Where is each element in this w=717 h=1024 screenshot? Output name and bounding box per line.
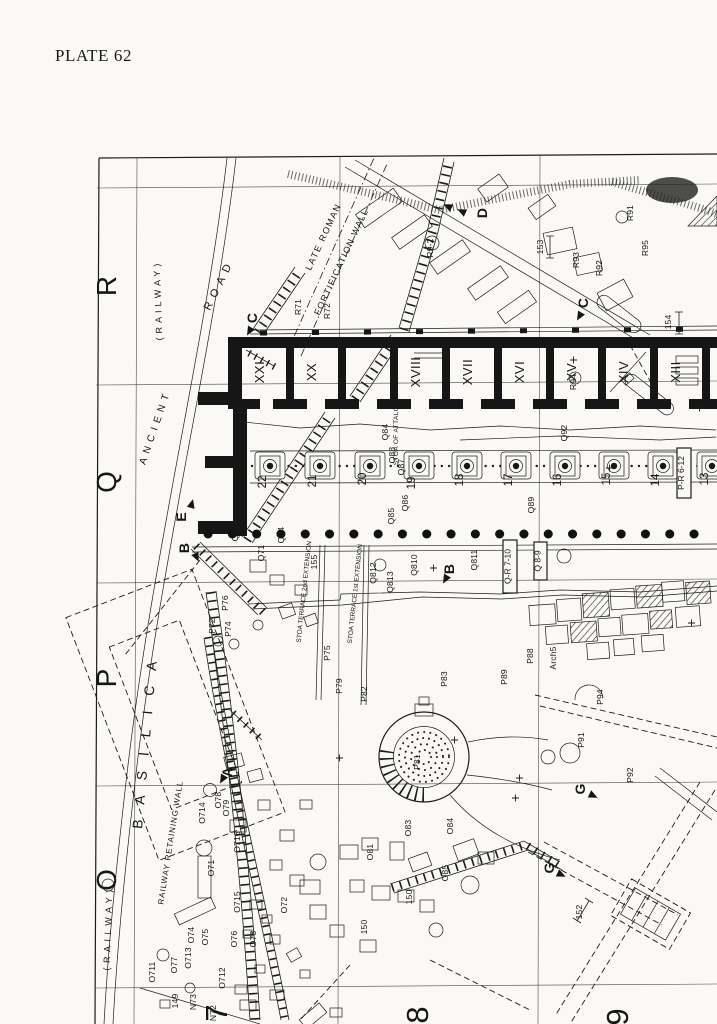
label-152: 152 [574, 905, 584, 920]
label-p91: P91 [576, 732, 586, 748]
label-p75: P75 [322, 645, 332, 661]
site-plan-svg: Q-R 7-10 Q 8-9 P-R 6-12 R Q P O 7 8 9 (R… [0, 0, 717, 1024]
room-label-xvii: XVII [460, 359, 475, 386]
boxed-label-q89: Q 8-9 [533, 550, 543, 572]
section-marker-e: E [173, 512, 189, 521]
railway-bottom-label: (RAILWAY) [102, 885, 115, 971]
room-label-xiv: XIV [616, 361, 631, 383]
label-o73: O73 [248, 931, 258, 948]
label-o85: O85 [440, 865, 450, 882]
label-o71: O71 [206, 860, 216, 877]
label-r9-2: R9-2 [425, 238, 435, 257]
grid-letter-q: Q [91, 471, 122, 493]
label-o711: O711 [147, 961, 157, 982]
roads-and-aqueducts [528, 685, 717, 1024]
label-o715: O715 [232, 891, 242, 913]
label-q87: Q87 [396, 459, 406, 476]
column-label-18: 18 [454, 474, 466, 487]
label-q85: Q85 [386, 508, 396, 525]
column-label-14: 14 [650, 473, 662, 486]
label-p74: P74 [223, 621, 233, 637]
label-q812: Q812 [368, 562, 378, 584]
label-q810: Q810 [409, 554, 419, 576]
section-marker-c-top: C [244, 313, 260, 323]
label-p76: P76 [220, 595, 230, 611]
column-label-21: 21 [307, 475, 319, 488]
label-149: 149 [170, 994, 180, 1009]
column-label-17: 17 [503, 474, 515, 487]
label-o84: O84 [445, 818, 455, 835]
room-label-xviii: XVIII [408, 357, 423, 388]
section-marker-b-left: B [176, 543, 192, 553]
label-q72: Q72 [230, 525, 240, 542]
grid-number-9: 9 [600, 1008, 635, 1024]
label-p89: P89 [499, 669, 509, 685]
grid-number-8: 8 [400, 1006, 435, 1023]
south-ruins [300, 838, 562, 1020]
label-p72: P72 [207, 618, 217, 634]
label-o713: O713 [183, 947, 193, 969]
label-153: 153 [535, 240, 545, 255]
label-150-b: 150 [359, 920, 369, 935]
label-q71: Q71 [256, 545, 266, 562]
room-label-xvi: XVI [512, 361, 527, 383]
railway-top-label: (RAILWAY) [152, 260, 165, 341]
label-o72: O72 [279, 897, 289, 914]
grid-letter-r: R [91, 276, 122, 296]
label-r95: R95 [640, 240, 650, 256]
label-p88: P88 [525, 648, 535, 664]
column-label-22: 22 [257, 476, 269, 489]
label-o714: O714 [197, 802, 207, 824]
label-o79: O79 [221, 800, 231, 817]
label-o77: O77 [169, 957, 179, 974]
label-r71: R71 [293, 299, 303, 315]
label-r92: R92 [594, 260, 604, 276]
label-o76: O76 [229, 931, 239, 948]
label-o83: O83 [403, 820, 413, 837]
retaining-wall-label: RAILWAY RETAINING WALL [156, 780, 184, 905]
boxed-label-qr710: Q-R 7-10 [503, 549, 513, 584]
label-p79: P79 [334, 678, 344, 694]
label-n73: N73 [188, 994, 198, 1010]
boxed-label-pr612: P-R 6-12 [676, 456, 686, 490]
label-o716: O716 [232, 831, 242, 853]
label-q74: Q74 [276, 527, 286, 544]
ancient-road-label-ancient: ANCIENT [138, 388, 174, 466]
label-r93: R93 [571, 252, 581, 268]
section-marker-g-upper: G [572, 783, 588, 794]
label-p94: P94 [595, 689, 605, 705]
label-150-a: 150 [404, 890, 414, 905]
label-n72: N72 [208, 1005, 218, 1021]
label-o74: O74 [186, 927, 196, 944]
section-marker-c-right: C [575, 298, 591, 308]
room-label-xiii: XIII [668, 361, 683, 383]
basilica-label: BASILICA [129, 646, 161, 830]
stoa-note-label-2: ORIGINAL N END [0, 0, 29, 2]
column-label-20: 20 [357, 473, 369, 486]
grid-letter-p: P [91, 669, 122, 688]
section-marker-g-lower: G [541, 862, 557, 873]
label-r72: R72 [322, 303, 332, 319]
column-label-16: 16 [552, 474, 564, 487]
label-o712: O712 [217, 967, 227, 989]
label-o75: O75 [200, 929, 210, 946]
label-r94: R94 [568, 374, 578, 390]
label-p82: P82 [359, 686, 369, 702]
label-p83: P83 [439, 671, 449, 687]
room-label-xxi: XXI [252, 361, 267, 383]
section-marker-d: D [474, 208, 490, 218]
section-marker-b-mid: B [441, 564, 457, 574]
label-p81: P81 [412, 754, 422, 770]
stoa-north-end-wall [198, 392, 247, 536]
ancient-road-label-road: ROAD [202, 257, 237, 312]
label-p92: P92 [625, 767, 635, 783]
label-q84: Q84 [380, 424, 390, 441]
label-154: 154 [663, 315, 673, 330]
area-labels: (RAILWAY) (RAILWAY) ANCIENT ROAD LATE RO… [0, 0, 400, 971]
late-roman-wall-label-2: FORTIFICATION WALL [312, 207, 370, 317]
label-r91: R91 [625, 205, 635, 221]
column-label-15: 15 [601, 473, 613, 486]
label-o81: O81 [365, 844, 375, 861]
label-155: 155 [309, 555, 319, 570]
label-q86: Q86 [400, 495, 410, 512]
column-label-19: 19 [406, 477, 418, 490]
stoa-room-labels: XXI XX XVIII XVII XVI XV XIV XIII [252, 357, 683, 388]
room-label-xx: XX [304, 363, 319, 381]
scanned-plate-page: PLATE 62 [0, 0, 717, 1024]
grid-numbers: 7 8 9 [199, 1004, 635, 1024]
stoa-front-wall [242, 399, 717, 409]
column-label-13: 13 [699, 473, 711, 486]
label-arch5: Arch5 [548, 646, 558, 669]
label-q813: Q813 [385, 571, 395, 593]
label-q89: Q89 [526, 497, 536, 514]
label-q92: Q92 [559, 425, 569, 442]
label-q811: Q811 [469, 549, 479, 570]
